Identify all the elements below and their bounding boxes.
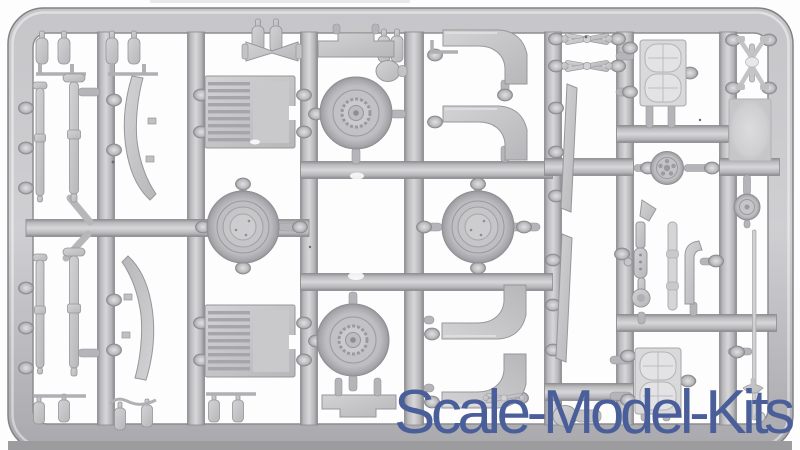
- runner-horizontal-5: [545, 159, 634, 176]
- part-engine-grille-bottom: [205, 305, 296, 377]
- part-engine-grille-top: [205, 76, 296, 148]
- part-sprocket-wheel-top: [320, 77, 392, 149]
- runner-vertical-5: [545, 32, 562, 425]
- part-dished-road-wheel-right: [442, 191, 514, 263]
- sprue-photo: Scale-Model-Kits: [0, 0, 800, 450]
- photo-edge-smudge: [150, 0, 410, 3]
- part-segmented-pipe: [667, 222, 679, 310]
- part-sprocket-wheel-bottom: [317, 304, 389, 376]
- part-dished-road-wheel-left: [207, 191, 279, 263]
- watermark-text: Scale-Model-Kits: [394, 382, 791, 444]
- part-flat-panel: [729, 99, 771, 161]
- runner-horizontal-2: [301, 162, 553, 179]
- part-seat-top: [640, 40, 686, 106]
- part-small-spoked-wheel: [651, 152, 684, 185]
- part-small-drum-wheel: [734, 194, 760, 220]
